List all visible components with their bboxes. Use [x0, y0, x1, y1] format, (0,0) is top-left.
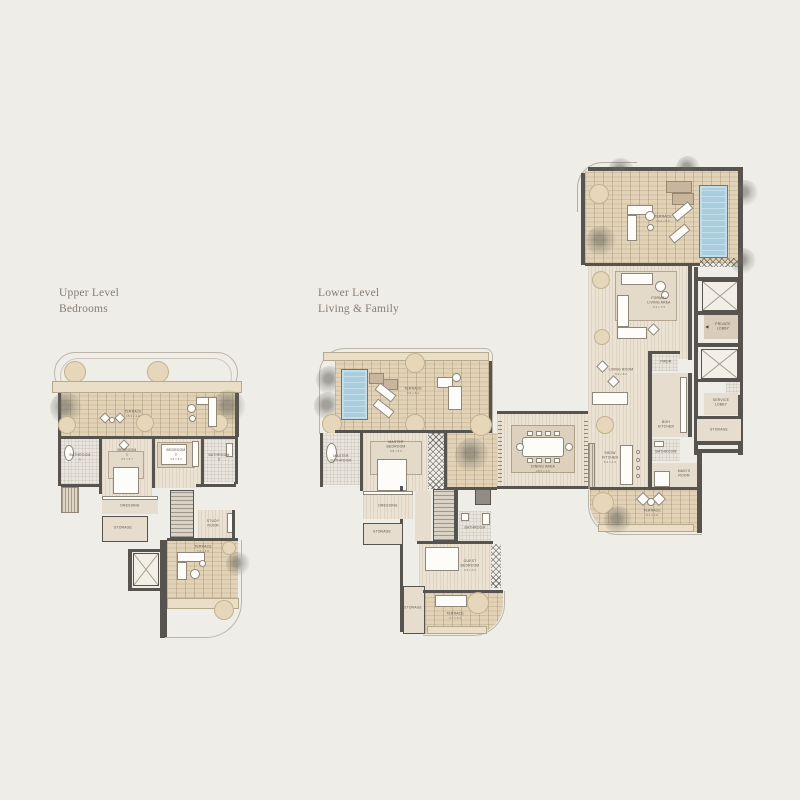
label-line: STORAGE — [373, 530, 391, 534]
room-label-bathroom1: BATHROOM 1 — [70, 454, 91, 463]
chair-icon — [527, 458, 533, 463]
room-label-master-bathroom: MASTER BATHROOM — [331, 455, 352, 464]
curtain-icon — [498, 418, 502, 482]
sofa-icon — [448, 386, 462, 410]
chair-icon — [189, 415, 196, 422]
entry-arrow-icon: ◀ — [705, 325, 708, 330]
chair-icon — [536, 458, 542, 463]
tree-icon — [586, 226, 616, 256]
accordion-door-icon — [491, 544, 501, 588]
wall-segment — [697, 449, 742, 453]
deck-box-icon — [672, 193, 694, 205]
bed-icon — [113, 467, 139, 494]
tree-icon — [604, 506, 632, 534]
chair-icon — [565, 443, 573, 451]
kitchen-island-icon — [620, 445, 633, 485]
label-line: BATHROOM — [656, 450, 677, 454]
staircase — [170, 490, 194, 538]
wall-segment — [497, 486, 589, 489]
terrace-edge-outline — [165, 540, 242, 638]
room-label-private-lobby: PRIVATE LOBBY — [715, 323, 730, 332]
label-dims: 3.6 x 4.6 — [461, 569, 480, 573]
room-label-show-kitchen: SHOW KITCHEN 5.4 x 4.3 — [602, 452, 618, 465]
upper-level-title-line1: Upper Level — [59, 286, 119, 302]
table-icon — [109, 417, 115, 423]
room-label-living-room: LIVING ROOM 5.9 x 8.2 — [609, 368, 634, 376]
lower-level-title: Lower Level Living & Family — [318, 286, 399, 317]
wall-segment — [688, 266, 692, 360]
closet-icon — [61, 487, 79, 513]
sofa-icon — [435, 595, 467, 607]
dining-table-icon — [522, 437, 564, 457]
room-label-study: STUDY ROOM — [207, 520, 219, 529]
label-line: 1 — [70, 458, 91, 462]
label-line: STORAGE — [114, 526, 132, 530]
wall-segment — [697, 441, 742, 445]
room-label-bedroom1: BEDROOM 1 4.5 x 5.7 — [118, 449, 137, 462]
elevator-icon — [133, 553, 159, 586]
lower-level-title-line1: Lower Level — [318, 286, 399, 302]
planter-icon — [58, 416, 76, 434]
accordion-door-icon — [700, 258, 738, 267]
sofa-icon — [627, 215, 637, 241]
room-label-storage-lobby: STORAGE — [710, 428, 728, 432]
planter-icon — [470, 414, 492, 436]
sofa-icon — [621, 273, 653, 285]
planter-icon — [467, 592, 489, 614]
wall-segment — [232, 510, 235, 540]
room-label-service-lobby: SERVICE LOBBY — [713, 399, 729, 408]
planter-icon — [64, 361, 86, 383]
wall-segment — [128, 549, 164, 552]
label-line: BATHROOM — [331, 459, 352, 463]
room-label-terrace-lower: TERRACE 9.1 x 2.8 — [643, 509, 661, 517]
chair-icon — [516, 443, 524, 451]
tree-icon — [455, 438, 489, 472]
table-icon — [187, 404, 196, 413]
label-dims: 4.5 x 5.7 — [118, 458, 137, 462]
room-label-boh-kitchen: BOH KITCHEN — [658, 421, 674, 430]
label-line: LOBBY — [715, 327, 730, 331]
room-label-maids-room: MAID'S ROOM — [678, 470, 691, 479]
room-label-bathroom2: BATHROOM 2 — [209, 454, 230, 463]
wall-segment — [128, 552, 132, 588]
room-label-bedroom2: BEDROOM 2 4.6 x 5.2 — [167, 449, 186, 462]
planter-icon — [596, 416, 614, 434]
bed-icon — [425, 547, 459, 571]
elevator-icon — [701, 349, 738, 379]
wall-segment — [688, 373, 692, 437]
label-line: DRESSING — [120, 504, 139, 508]
upper-level-title-line2: Bedrooms — [59, 302, 119, 318]
chair-icon — [554, 431, 560, 436]
label-dims: 9.1 x 2.8 — [643, 513, 661, 517]
chair-icon — [545, 431, 551, 436]
room-label-terrace-master: TERRACE 9.5 x 6.1 — [404, 387, 422, 395]
wall-segment — [61, 484, 99, 487]
wall-segment — [455, 489, 458, 541]
planter-icon — [594, 329, 610, 345]
floorplan-canvas: Upper Level Bedrooms Lower Level Living … — [0, 0, 800, 800]
toilet-icon — [461, 513, 469, 521]
pool — [341, 369, 368, 420]
room-label-terrace-guest: TERRACE 4.7 x 3.4 — [446, 612, 464, 620]
label-dims: 13.4 x 8.6 — [654, 219, 672, 223]
label-line: KITCHEN — [658, 425, 674, 429]
label-line: 2 — [209, 458, 230, 462]
room-label-storage2: STORAGE — [404, 606, 422, 610]
label-dims: 4.7 x 3.4 — [446, 616, 464, 620]
stool-icon — [636, 450, 640, 454]
kitchen-counter-icon — [588, 443, 595, 489]
chair-icon — [554, 458, 560, 463]
room-label-terrace: TERRACE 15.9 x 4.4 — [124, 410, 142, 418]
deck-box-icon — [369, 373, 384, 384]
room-label-dressing-lower: DRESSING — [378, 504, 397, 508]
sink-icon — [482, 513, 490, 525]
label-dims: 5.8 x 5.0 — [387, 450, 406, 454]
label-dims: 15.9 x 4.4 — [124, 414, 142, 418]
room-label-dining: DINING AREA 10.5 x 4.5 — [531, 465, 555, 473]
planter-icon — [147, 361, 169, 383]
label-line: DRESSING — [378, 504, 397, 508]
staircase — [433, 489, 455, 541]
label-dims: 9.5 x 6.1 — [404, 391, 422, 395]
bed-icon — [654, 471, 670, 487]
room-label-pwdr: PWDR — [660, 360, 671, 364]
table-icon — [452, 373, 461, 382]
table-icon — [647, 498, 655, 506]
upper-level-title: Upper Level Bedrooms — [59, 286, 119, 317]
label-line: PWDR — [660, 360, 671, 364]
chair-icon — [545, 458, 551, 463]
label-line: ROOM — [207, 524, 219, 528]
label-line: LOBBY — [713, 403, 729, 407]
label-line: BATHROOM — [465, 526, 486, 530]
planter-icon — [214, 600, 234, 620]
chair-icon — [536, 431, 542, 436]
label-dims: 5.9 x 8.2 — [609, 372, 634, 376]
stool-icon — [636, 458, 640, 462]
parapet-band — [52, 381, 242, 393]
shaft — [475, 489, 491, 505]
room-label-terrace-main: TERRACE 13.4 x 8.6 — [654, 215, 672, 223]
sofa-icon — [617, 327, 647, 339]
wall-segment — [698, 343, 742, 347]
kitchen-counter-icon — [680, 377, 687, 433]
elevator-icon — [702, 281, 738, 311]
wall-segment — [697, 453, 702, 533]
planter-icon — [405, 353, 425, 373]
pool — [699, 185, 728, 258]
room-label-guest-bedroom: GUEST BEDROOM 3.6 x 4.6 — [461, 560, 480, 573]
label-dims: 5.4 x 4.3 — [602, 461, 618, 465]
chair-icon — [527, 431, 533, 436]
room-label-formal-living: FORMAL LIVING AREA 6.1 x 7.3 — [647, 297, 670, 310]
corridor-floor — [415, 491, 431, 541]
label-dims: 4.6 x 5.2 — [167, 458, 186, 462]
stool-icon — [636, 466, 640, 470]
sofa-icon — [617, 295, 629, 327]
room-label-storage: STORAGE — [114, 526, 132, 530]
wardrobe-icon — [192, 441, 199, 467]
planter-icon — [592, 271, 610, 289]
label-line: ROOM — [678, 474, 691, 478]
wall-segment — [196, 484, 236, 487]
sofa-icon — [592, 392, 628, 405]
wall-segment — [128, 588, 164, 591]
sofa-icon — [208, 397, 217, 427]
sink-icon — [654, 441, 664, 447]
planter-icon — [589, 184, 609, 204]
label-line: STORAGE — [710, 428, 728, 432]
deck-box-icon — [666, 181, 692, 193]
room-label-maid-bathroom: BATHROOM — [656, 450, 677, 454]
label-dims: 10.5 x 4.5 — [531, 469, 555, 473]
chair-icon — [647, 224, 654, 231]
room-label-dressing: DRESSING — [120, 504, 139, 508]
accordion-door-icon — [428, 433, 444, 489]
lower-level-title-line2: Living & Family — [318, 302, 399, 318]
room-label-storage1: STORAGE — [373, 530, 391, 534]
room-label-bathroom: BATHROOM — [465, 526, 486, 530]
stool-icon — [636, 474, 640, 478]
label-dims: 6.1 x 7.3 — [647, 306, 670, 310]
label-line: STORAGE — [404, 606, 422, 610]
room-label-master-bedroom: MASTER BEDROOM 5.8 x 5.0 — [387, 441, 406, 454]
parapet-band — [427, 626, 487, 634]
